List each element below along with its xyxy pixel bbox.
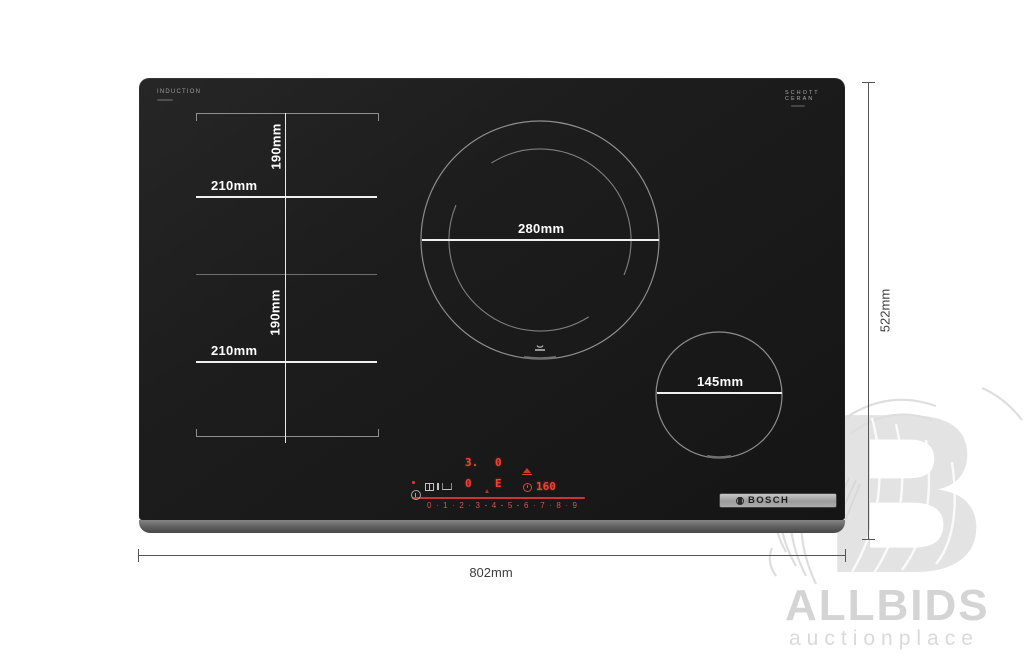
slider-number: 8 [556, 501, 560, 510]
product-image: B INDUCTION SCHO [0, 0, 1024, 660]
zone-grid-icon [425, 483, 434, 491]
slider-number: 5 [508, 501, 512, 510]
slider-number: 7 [540, 501, 544, 510]
slider-number: 3 [476, 501, 480, 510]
led-display-top-left: 3. [465, 457, 478, 468]
width-dimension-line [138, 549, 846, 562]
dim-label-190-bottom: 190mm [268, 283, 283, 343]
svg-text:B: B [822, 380, 987, 590]
dim-line-145 [657, 392, 782, 394]
dim-line-210-top [196, 196, 377, 198]
led-display-bottom-right: E [495, 478, 502, 489]
slider-number: 1 [443, 501, 447, 510]
burner-large-marker [524, 357, 556, 358]
bosch-logo-text: BOSCH [748, 495, 789, 506]
dim-line-210-bottom [196, 361, 377, 363]
cooktop: INDUCTION SCHOTT CERAN [139, 78, 845, 533]
flex-zone-center-line [285, 113, 287, 443]
flex-zone-top-bracket [196, 113, 379, 121]
height-dimension-line [862, 82, 875, 540]
bosch-logo-band: BOSCH [720, 494, 836, 507]
slider-number: 9 [573, 501, 577, 510]
dim-label-145: 145mm [697, 374, 743, 389]
flexzone-icons [425, 483, 452, 490]
power-indicator-dot [412, 481, 415, 484]
burner-graphics [139, 78, 845, 533]
led-display-bottom-left: 0 [465, 478, 472, 489]
led-display-top-right: 0 [495, 457, 502, 468]
slider-number: 0 [427, 501, 431, 510]
bosch-symbol-icon [736, 497, 744, 505]
power-level-slider: 0 1 2 3 4 5 6 7 8 9 [427, 501, 577, 510]
watermark-tagline: auctionplace [789, 627, 1021, 651]
flex-zone-bottom-bracket [196, 429, 379, 437]
hot-surface-icon [485, 489, 489, 493]
power-lock-icon [411, 490, 421, 500]
dim-label-280: 280mm [518, 221, 564, 236]
dim-label-190-top: 190mm [269, 117, 284, 177]
burner-small-circle [656, 332, 782, 458]
slider-number: 2 [459, 501, 463, 510]
height-dimension-label: 522mm [878, 281, 893, 341]
wiper-icon [523, 468, 532, 475]
timer-display: 160 [536, 481, 556, 492]
width-dimension-label: 802mm [138, 565, 844, 580]
zone-pan-icon [442, 483, 452, 490]
zone-bar-icon [437, 483, 439, 490]
flex-zone-divider [196, 274, 377, 275]
watermark-brand: ALLBIDS [785, 584, 1021, 628]
burner-small-marker [707, 456, 731, 457]
slider-number: 4 [492, 501, 496, 510]
pan-detection-icon [535, 346, 545, 351]
slider-number: 6 [524, 501, 528, 510]
clock-icon [523, 483, 532, 492]
dim-line-280 [422, 239, 659, 241]
slider-track [412, 497, 585, 499]
dim-label-210-bottom: 210mm [211, 343, 257, 358]
dim-label-210-top: 210mm [211, 178, 257, 193]
